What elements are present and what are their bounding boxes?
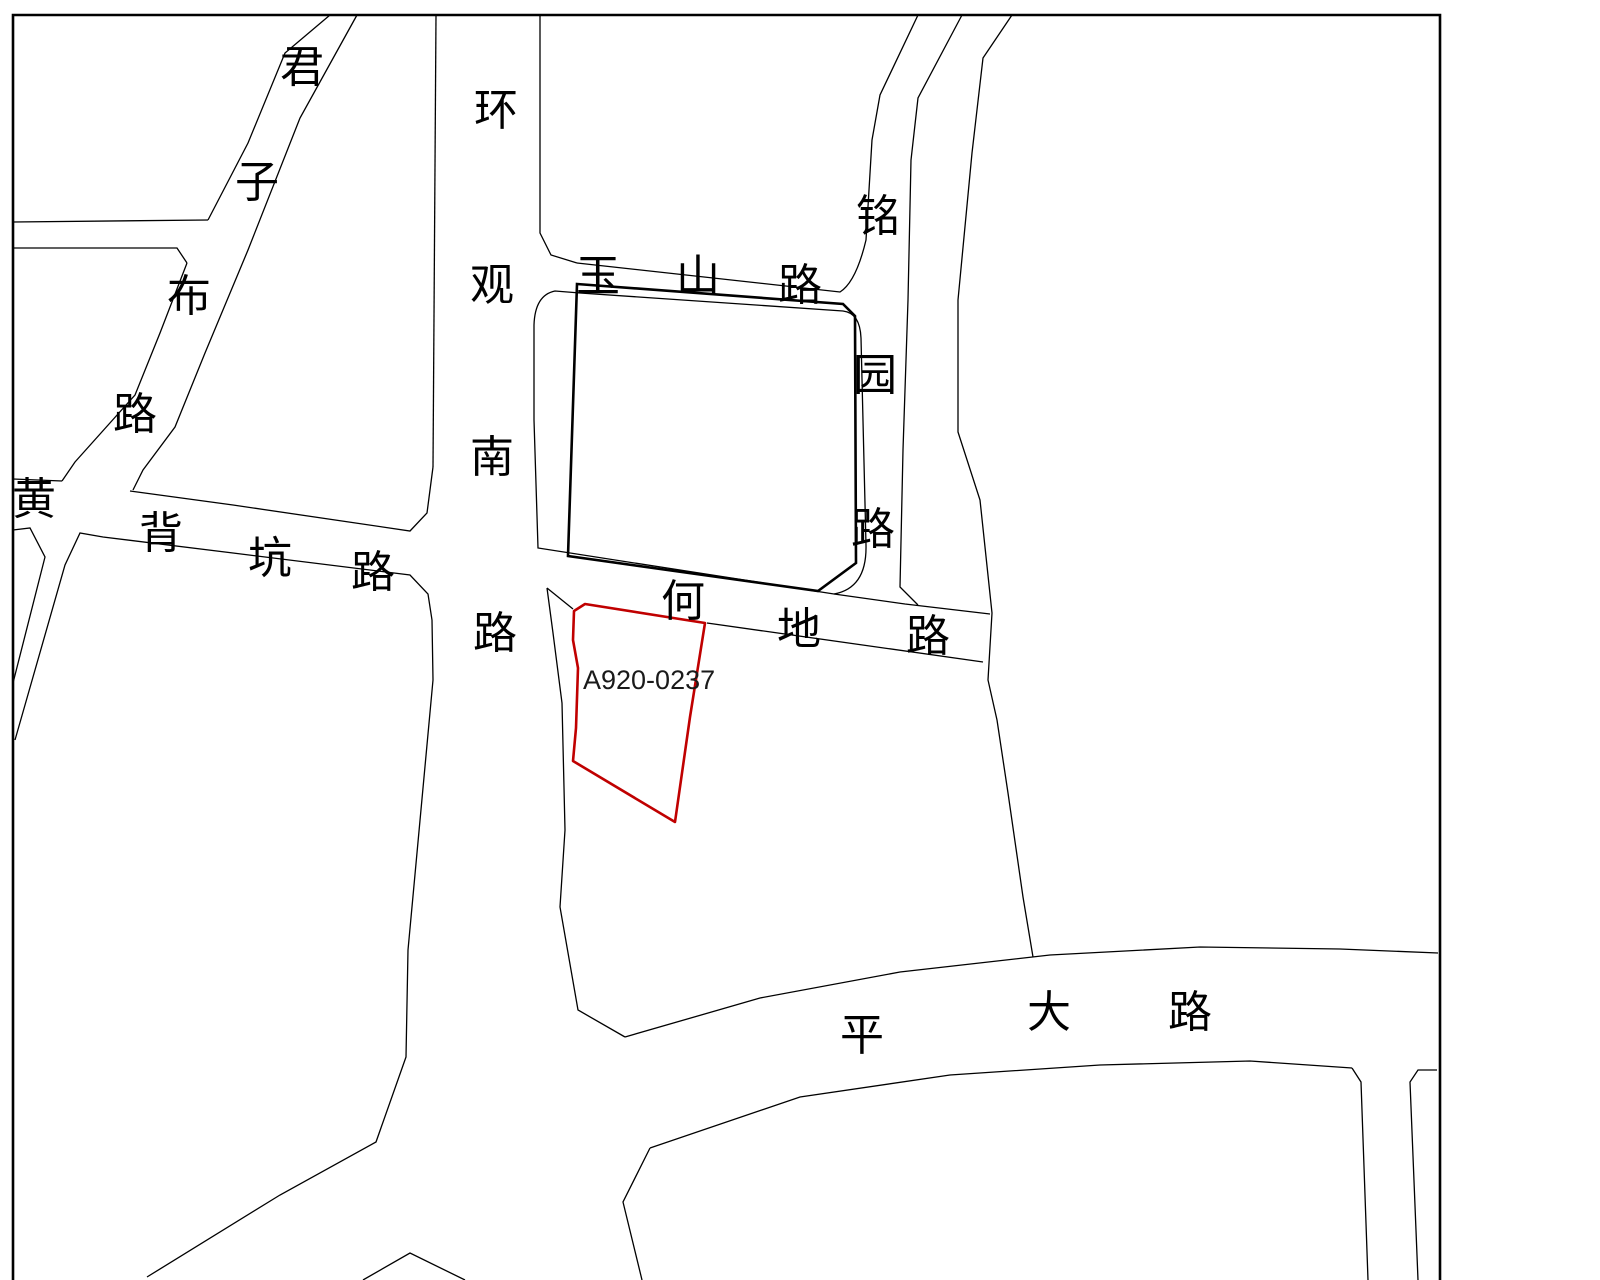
road-huanguannan-left-edge-lower (147, 680, 433, 1277)
road-label-junzibu-char-3: 路 (113, 393, 157, 437)
road-huanguannan-right-edge-upper (540, 15, 577, 263)
parcel-id-label: A920-0237 (583, 665, 715, 696)
road-junzibu-sw-leg-west-edge (13, 528, 45, 683)
road-network (13, 15, 1438, 1280)
map-frame-border (13, 15, 1440, 1280)
road-label-mingyuan-char-1: 园 (853, 354, 897, 398)
branch-road-bottom-edge (13, 248, 187, 263)
se-south-road-left-edge (1352, 1068, 1368, 1280)
road-label-yushan-char-0: 玉 (576, 255, 620, 299)
road-huanguannan-left-edge-upper (433, 15, 436, 467)
south-road-west-edge (623, 1148, 650, 1280)
road-pingda-south-edge (650, 1061, 1352, 1148)
road-yushan-north-edge (577, 15, 918, 292)
road-label-mingyuan-char-0: 铭 (856, 195, 900, 239)
road-label-junzibu-char-1: 子 (235, 161, 279, 205)
road-label-pingda-char-0: 平 (840, 1014, 884, 1058)
road-label-junzibu-char-0: 君 (280, 46, 324, 90)
central-block-outer-boundary (534, 291, 866, 594)
road-mingyuan-east-edge (900, 15, 962, 605)
road-label-junzibu-char-2: 布 (167, 275, 211, 319)
road-label-yushan-char-2: 路 (778, 264, 822, 308)
road-label-hedi-char-1: 地 (777, 608, 821, 652)
road-label-huanguannan-char-3: 路 (473, 612, 517, 656)
road-label-pingda-char-2: 路 (1168, 991, 1212, 1035)
road-huanguannan-right-edge-lower (547, 588, 625, 1037)
road-label-huangbeikeng-char-0: 黄 (12, 478, 56, 522)
road-label-huanguannan-char-0: 环 (474, 89, 518, 133)
se-south-road-right-edge (1410, 1070, 1437, 1280)
east-parcel-boundary (958, 15, 1033, 957)
road-label-hedi-char-2: 路 (906, 615, 950, 659)
hedi-junction-chamfer (547, 588, 573, 609)
planning-map: 君 子 布 路 环 观 南 路 玉 山 路 铭 园 路 黄 背 坑 路 何 地 … (0, 0, 1600, 1280)
road-label-pingda-char-1: 大 (1027, 991, 1071, 1035)
road-label-huanguannan-char-1: 观 (470, 264, 514, 308)
road-label-hedi-char-0: 何 (661, 580, 705, 624)
road-label-huangbeikeng-char-1: 背 (139, 512, 183, 556)
parcel-A920-0237-outline[interactable] (573, 604, 705, 822)
road-label-yushan-char-1: 山 (676, 255, 720, 299)
road-label-mingyuan-char-2: 路 (851, 508, 895, 552)
road-label-huangbeikeng-char-2: 坑 (248, 537, 292, 581)
bottom-wedge-boundary (363, 1253, 465, 1280)
road-label-huanguannan-char-2: 南 (470, 436, 514, 480)
road-label-huangbeikeng-char-3: 路 (351, 551, 395, 595)
branch-road-top-edge (13, 220, 208, 222)
central-block-inner-parcel (568, 284, 856, 591)
